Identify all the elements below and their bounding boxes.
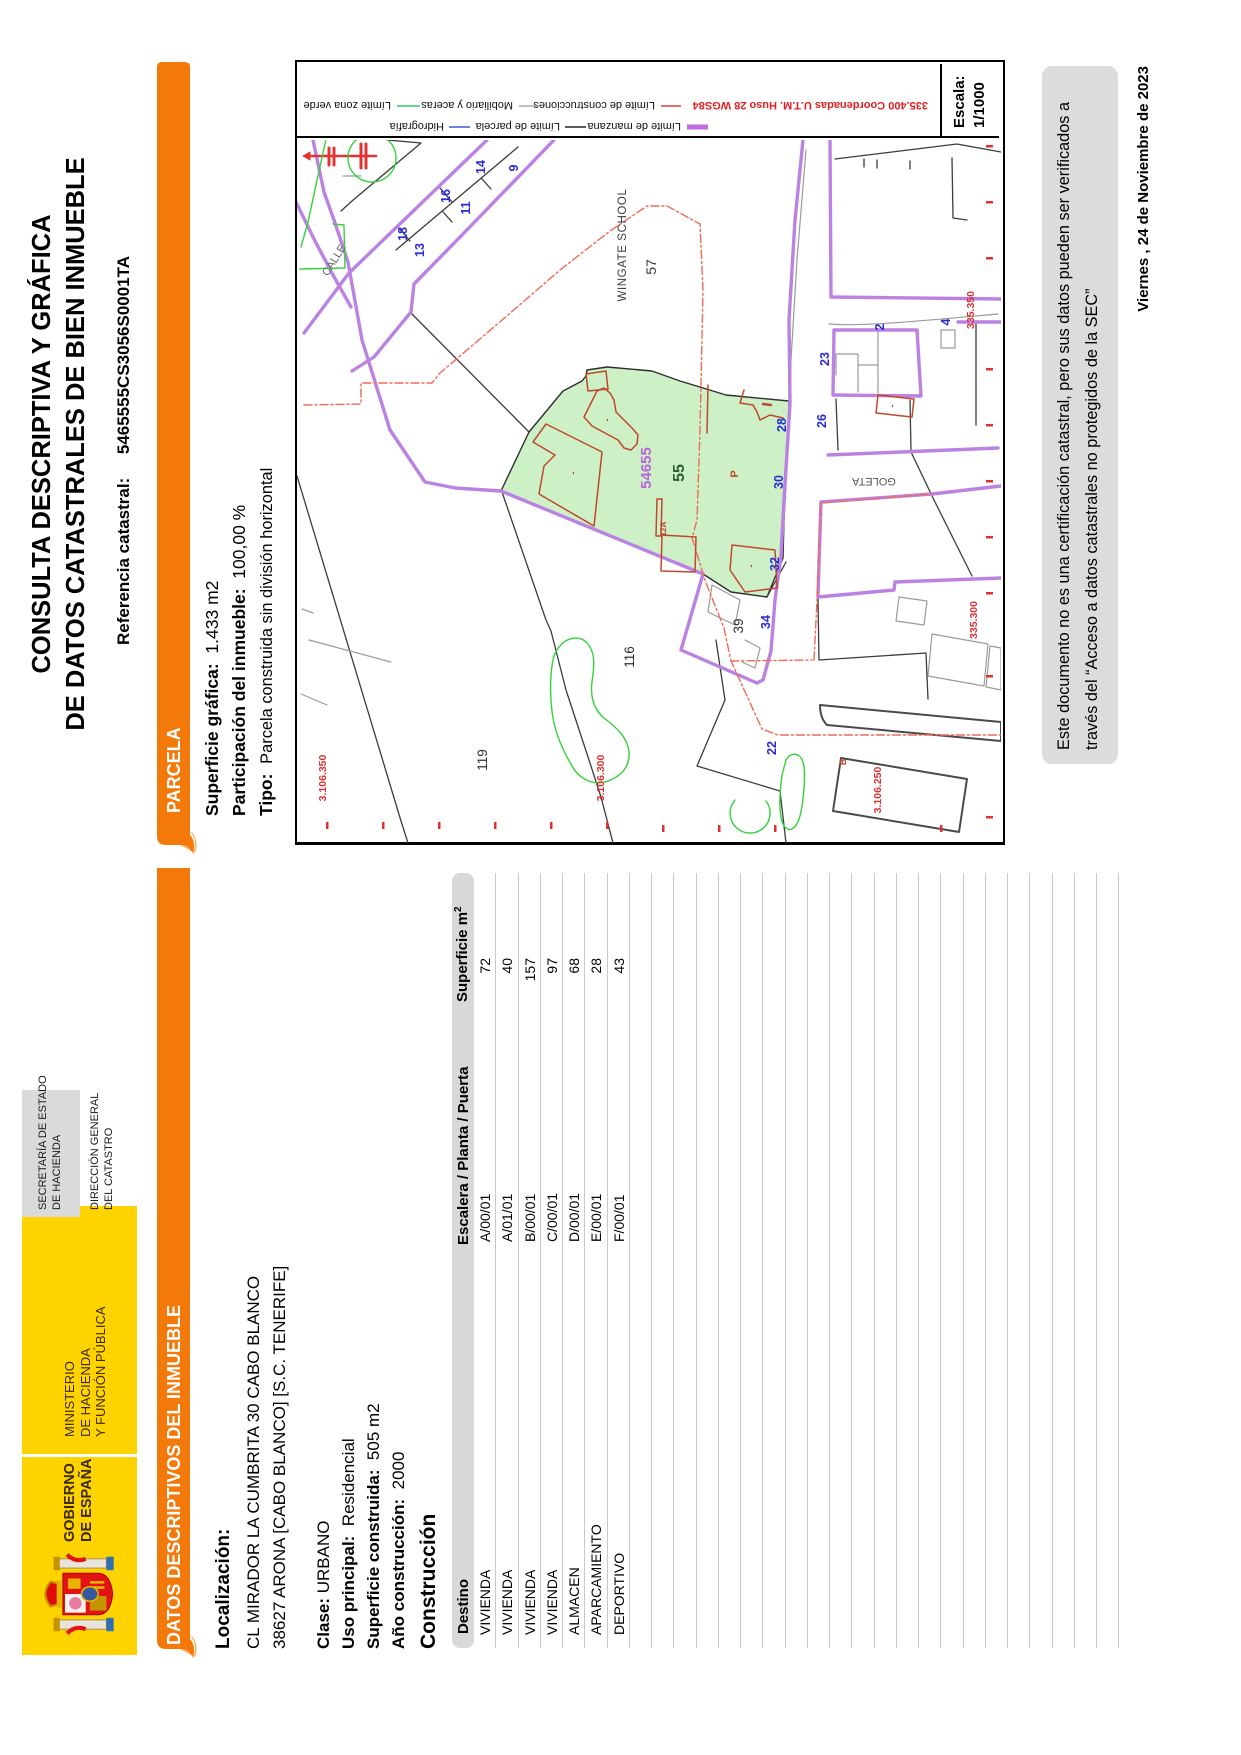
svg-text:18: 18 xyxy=(396,227,410,241)
svg-text:11: 11 xyxy=(459,201,473,214)
svg-text:26: 26 xyxy=(815,414,829,428)
svg-text:-: - xyxy=(568,472,578,475)
svg-text:39: 39 xyxy=(731,618,746,633)
svg-text:Límite de manzana: Límite de manzana xyxy=(587,120,681,132)
svg-text:Límite de parcela: Límite de parcela xyxy=(475,120,560,132)
svg-text:Hidrografía: Hidrografía xyxy=(389,120,444,132)
svg-text:-: - xyxy=(887,405,897,408)
svg-text:119: 119 xyxy=(475,749,490,771)
svg-text:57: 57 xyxy=(643,259,659,275)
svg-text:116: 116 xyxy=(622,646,637,668)
svg-text:16: 16 xyxy=(439,189,453,203)
svg-text:B: B xyxy=(838,758,848,765)
svg-text:14: 14 xyxy=(474,160,488,174)
svg-text:Límite zona verde: Límite zona verde xyxy=(304,99,391,111)
svg-text:4: 4 xyxy=(939,318,953,325)
svg-text:-: - xyxy=(602,419,612,422)
svg-text:55: 55 xyxy=(671,464,688,482)
svg-text:3.106.350: 3.106.350 xyxy=(317,754,329,801)
svg-text:-: - xyxy=(746,565,756,568)
svg-text:3.106.300: 3.106.300 xyxy=(595,754,607,801)
svg-text:13: 13 xyxy=(413,243,427,257)
svg-text:P: P xyxy=(729,470,741,477)
svg-text:34: 34 xyxy=(759,615,773,629)
svg-text:2: 2 xyxy=(873,323,887,330)
svg-text:12A: 12A xyxy=(659,521,668,536)
svg-text:GOLETA: GOLETA xyxy=(851,475,895,487)
svg-text:3.106.250: 3.106.250 xyxy=(872,766,884,813)
svg-text:WINGATE SCHOOL: WINGATE SCHOOL xyxy=(617,189,629,302)
svg-text:335.350: 335.350 xyxy=(965,291,977,329)
svg-text:28: 28 xyxy=(775,418,789,432)
svg-text:22: 22 xyxy=(765,741,779,755)
svg-text:32: 32 xyxy=(768,557,782,571)
svg-text:335.400 Coordenadas U.T.M. Hus: 335.400 Coordenadas U.T.M. Huso 28 WGS84 xyxy=(692,99,928,111)
svg-text:335.300: 335.300 xyxy=(968,601,980,639)
svg-text:23: 23 xyxy=(818,352,832,366)
svg-text:30: 30 xyxy=(772,475,786,489)
svg-text:Límite de construcciones: Límite de construcciones xyxy=(533,99,655,111)
svg-text:9: 9 xyxy=(507,164,521,171)
svg-text:Mobiliario y aceras: Mobiliario y aceras xyxy=(421,99,513,111)
svg-text:54655: 54655 xyxy=(638,447,655,489)
